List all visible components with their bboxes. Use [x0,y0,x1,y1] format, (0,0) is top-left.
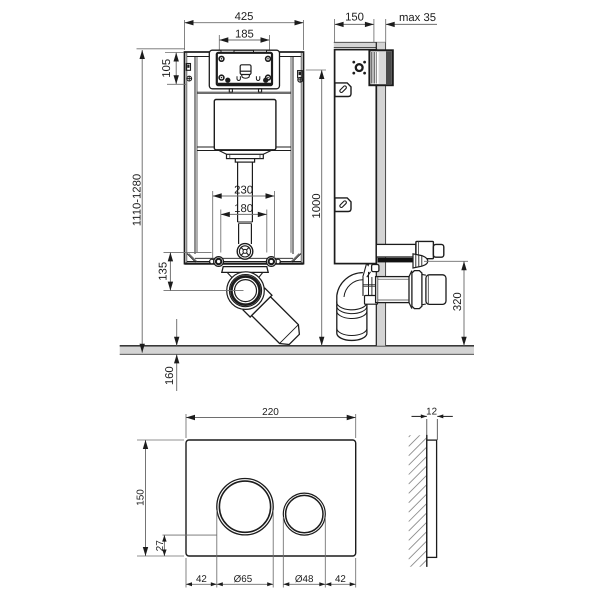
svg-text:12: 12 [426,407,437,418]
svg-text:27: 27 [155,540,166,552]
svg-text:220: 220 [262,407,279,418]
svg-text:42: 42 [335,574,346,585]
svg-text:150: 150 [345,11,364,23]
svg-text:105: 105 [161,59,173,78]
svg-text:42: 42 [196,574,207,585]
svg-text:180: 180 [234,203,253,215]
svg-text:160: 160 [164,366,176,385]
svg-text:1000: 1000 [311,193,323,218]
svg-text:1110-1280: 1110-1280 [131,174,143,226]
svg-text:Ø65: Ø65 [234,574,253,585]
svg-text:135: 135 [157,262,169,281]
svg-text:230: 230 [234,184,253,196]
svg-text:150: 150 [136,489,147,506]
svg-text:max 35: max 35 [399,12,436,24]
svg-text:Ø48: Ø48 [295,574,314,585]
svg-text:320: 320 [452,292,464,311]
svg-text:425: 425 [235,11,254,23]
svg-text:185: 185 [235,28,254,40]
